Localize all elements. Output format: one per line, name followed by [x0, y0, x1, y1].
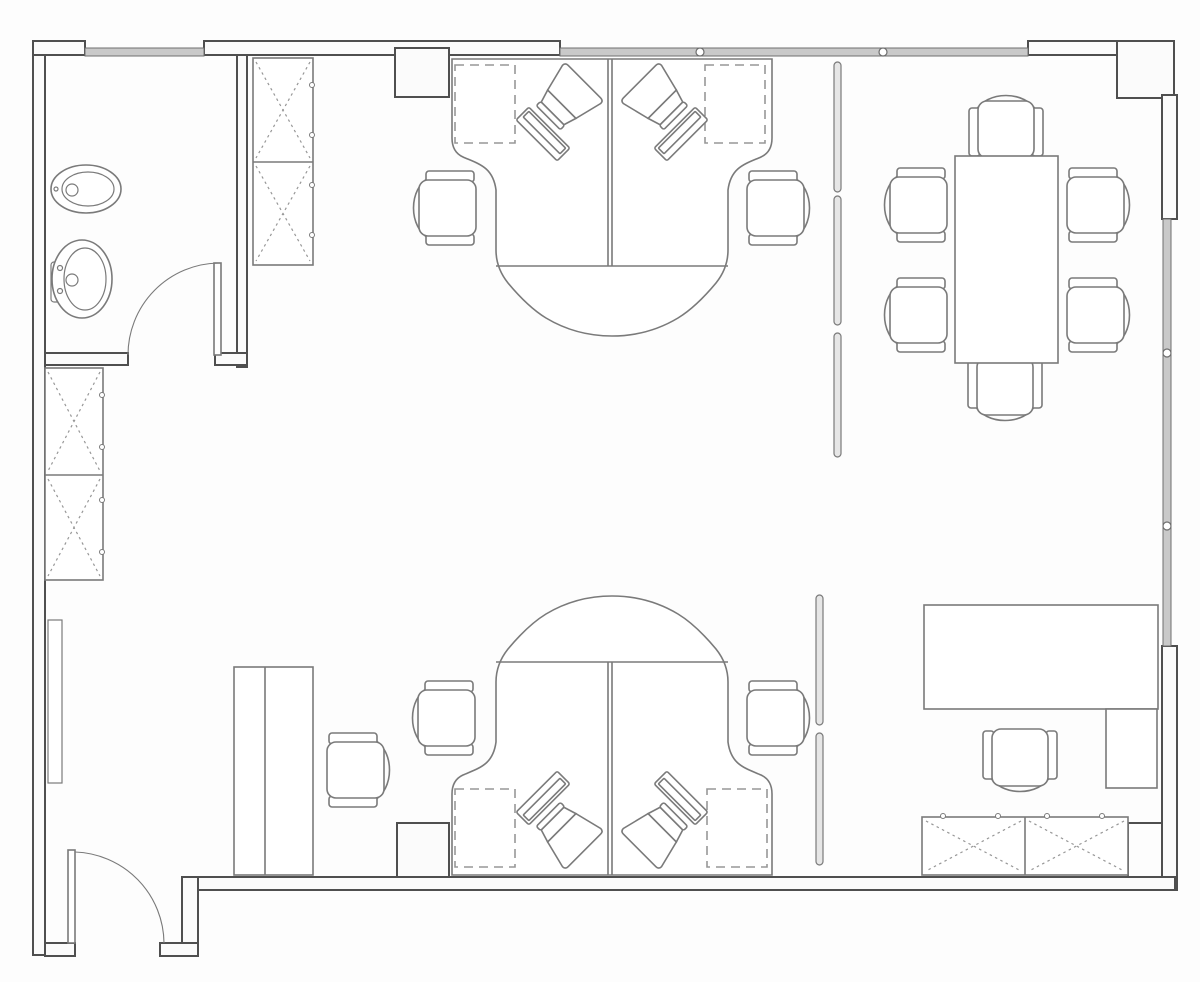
window-mullion-icon	[879, 48, 887, 56]
bathroom-door-leaf	[214, 263, 221, 355]
left-wall	[33, 43, 45, 955]
executive-desk	[924, 605, 1158, 709]
entry-door-swing-arc	[75, 852, 164, 943]
glass-partition-lower	[816, 595, 823, 865]
window-mullion-icon	[1163, 349, 1171, 357]
conference-chair	[885, 278, 948, 352]
executive-chair	[983, 729, 1057, 792]
window-band-right	[1163, 219, 1171, 646]
side-desk	[234, 667, 390, 875]
window-mullion-icon	[696, 48, 704, 56]
right-wall-lower	[1162, 646, 1177, 890]
door-bay-wall-left	[45, 943, 75, 956]
conference-area	[885, 96, 1130, 421]
conference-chair	[969, 96, 1043, 159]
bottom-right-corner-step	[1128, 823, 1162, 877]
bathroom-door-swing-arc	[128, 263, 218, 355]
wardrobe-cabinet-left	[45, 368, 105, 580]
door-bay-wall-right	[160, 943, 198, 956]
task-chair	[414, 171, 477, 245]
bathroom	[45, 55, 247, 367]
return-table	[1106, 709, 1157, 788]
conference-chair	[1067, 278, 1130, 352]
top-right-corner-step	[1117, 41, 1174, 98]
conference-chair	[1067, 168, 1130, 242]
floor-plan-canvas	[0, 0, 1200, 982]
bottom-wall	[182, 877, 1175, 890]
conference-table	[955, 156, 1058, 363]
window-band-top	[560, 48, 1028, 56]
entry-door-leaf	[68, 850, 75, 943]
window-mullion-icon	[1163, 522, 1171, 530]
toilet	[51, 165, 121, 213]
executive-area	[922, 605, 1158, 875]
conference-chair	[968, 358, 1042, 421]
floor-plan-page	[0, 0, 1200, 982]
radiator-panel	[48, 620, 62, 783]
task-chair	[747, 171, 810, 245]
sink	[51, 240, 112, 318]
task-chair	[327, 733, 390, 807]
conference-chair	[885, 168, 948, 242]
workstation-cluster-top	[414, 59, 810, 336]
window-band-bathroom	[85, 48, 204, 56]
bathroom-right-wall	[237, 55, 247, 367]
workstation-cluster-bottom	[413, 596, 810, 875]
wardrobe-cabinet-top	[253, 58, 315, 265]
top-wall-left-pier	[33, 41, 85, 55]
task-chair	[413, 681, 476, 755]
entry-door	[68, 850, 164, 943]
right-wall-upper	[1162, 95, 1177, 219]
top-duct-column	[395, 48, 449, 97]
bathroom-bottom-wall-left	[45, 353, 128, 365]
top-wall-mid	[204, 41, 560, 55]
task-chair	[747, 681, 810, 755]
credenza	[922, 814, 1128, 876]
glass-partition-upper	[834, 62, 841, 457]
bottom-duct-column	[397, 823, 449, 877]
